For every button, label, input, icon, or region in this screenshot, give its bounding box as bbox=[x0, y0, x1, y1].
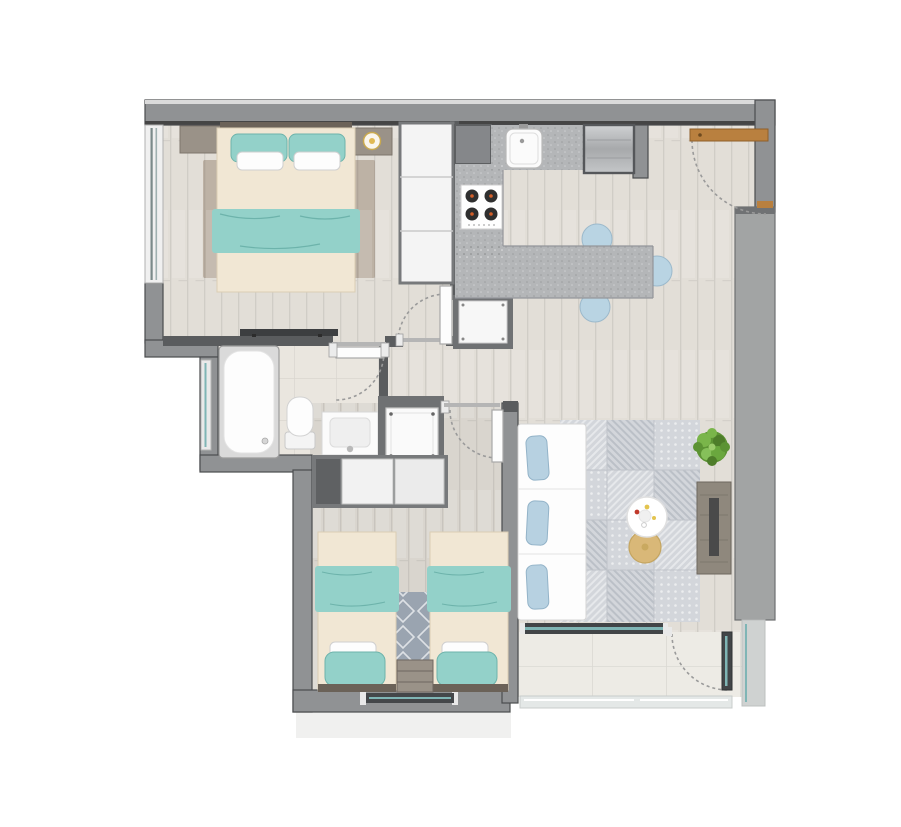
screw-dot bbox=[462, 304, 465, 307]
bedroom1-bottom-wall bbox=[163, 336, 333, 346]
right-wall-upper bbox=[755, 100, 775, 212]
door-frame-post bbox=[666, 627, 672, 636]
burner-center bbox=[489, 194, 493, 198]
closet-panel bbox=[342, 459, 393, 504]
screw-dot bbox=[502, 338, 505, 341]
glass-railing-bottom bbox=[520, 696, 732, 708]
entry-divider-wall bbox=[633, 125, 648, 178]
screw-dot bbox=[502, 304, 505, 307]
plant-center bbox=[709, 444, 716, 451]
table-lamp-bulb bbox=[369, 138, 375, 144]
entry-door-strike-sill bbox=[757, 201, 773, 208]
railing-glass-line bbox=[640, 699, 728, 701]
plant-leaf bbox=[707, 456, 717, 466]
table-decor-red bbox=[635, 510, 640, 515]
table-decor-yellow bbox=[652, 516, 656, 520]
screw-dot bbox=[462, 338, 465, 341]
sofa bbox=[518, 424, 586, 620]
burner-center bbox=[489, 212, 493, 216]
console-foot bbox=[318, 334, 322, 337]
right-wall-lower bbox=[735, 207, 775, 620]
plant-leaf bbox=[720, 442, 730, 452]
screw-dot bbox=[431, 412, 435, 416]
sink-drain bbox=[520, 139, 524, 143]
bed-headboard bbox=[318, 684, 396, 692]
rug-patch bbox=[607, 570, 654, 622]
bedroom1-door-leaf bbox=[440, 286, 452, 344]
teal-pillow bbox=[325, 652, 385, 686]
door-frame-post bbox=[381, 343, 389, 357]
bathtub-drain bbox=[262, 438, 268, 444]
rug-patch bbox=[654, 570, 700, 622]
closet-panel bbox=[395, 459, 444, 504]
vanity-faucet bbox=[347, 446, 353, 452]
cooktop bbox=[461, 185, 502, 229]
window-glazing bbox=[369, 697, 451, 699]
white-pillow-right bbox=[294, 152, 340, 170]
floor-plan-stage bbox=[0, 0, 901, 827]
bedroom2-nightstand bbox=[397, 660, 433, 692]
refrigerator bbox=[584, 125, 634, 173]
coffee-table-plate bbox=[639, 510, 651, 522]
sofa-pillow bbox=[525, 435, 549, 480]
pantry-door bbox=[459, 301, 507, 343]
wardrobe bbox=[400, 123, 453, 283]
sofa-pillow bbox=[526, 501, 549, 546]
table-decor-white bbox=[642, 523, 647, 528]
plant-leaf bbox=[707, 428, 717, 438]
window-glazing bbox=[151, 128, 153, 280]
rug-patch bbox=[654, 420, 700, 470]
door-frame-post bbox=[329, 343, 337, 357]
bedroom2-door-pier bbox=[503, 401, 518, 412]
floor-plan bbox=[0, 0, 901, 827]
teal-pillow bbox=[437, 652, 497, 686]
ottoman-tuft bbox=[642, 544, 649, 551]
closet-niche bbox=[316, 459, 340, 504]
exterior-apron bbox=[296, 712, 511, 738]
screw-dot bbox=[389, 412, 393, 416]
pantry-cabinet bbox=[453, 295, 513, 349]
bathtub bbox=[224, 351, 274, 453]
door-handle bbox=[698, 133, 702, 137]
sliding-window-glass bbox=[524, 627, 664, 630]
single-bed-left bbox=[315, 532, 399, 692]
door-threshold bbox=[332, 342, 386, 346]
bed-headboard bbox=[430, 684, 508, 692]
duct-shaft bbox=[455, 125, 491, 164]
plant-leaf bbox=[693, 442, 703, 452]
window-post bbox=[360, 692, 366, 705]
white-pillow-left bbox=[237, 152, 283, 170]
counter-speckle bbox=[455, 246, 653, 298]
bedroom2-door-leaf bbox=[492, 410, 503, 462]
bathroom-door-leaf bbox=[336, 347, 384, 358]
top-wall-highlight bbox=[145, 100, 775, 104]
vanity-basin bbox=[330, 418, 370, 447]
burner-center bbox=[470, 212, 474, 216]
room-living bbox=[518, 420, 731, 622]
cooktop-panel bbox=[461, 185, 502, 229]
door-threshold bbox=[396, 338, 446, 342]
bedroom2-left-wall bbox=[293, 470, 312, 712]
double-bed-blanket bbox=[212, 209, 360, 253]
railing-glass-line bbox=[524, 699, 634, 701]
door-frame-post bbox=[396, 334, 403, 346]
single-bed-right bbox=[427, 532, 511, 692]
washing-machine bbox=[386, 408, 438, 462]
railing-glass-line bbox=[745, 624, 747, 702]
burner-center bbox=[470, 194, 474, 198]
balcony-door-glass bbox=[725, 636, 728, 686]
window-glazing bbox=[156, 128, 158, 280]
toilet-bowl bbox=[287, 397, 313, 436]
tv-console-slot bbox=[709, 498, 719, 556]
console-foot bbox=[252, 334, 256, 337]
door-threshold bbox=[444, 403, 500, 407]
table-decor-yellow bbox=[645, 505, 650, 510]
tv-console bbox=[697, 482, 731, 574]
left-wall-lower bbox=[145, 283, 163, 343]
bedroom1-window bbox=[145, 125, 163, 283]
sliding-window-cap bbox=[520, 623, 525, 634]
sofa-pillow bbox=[526, 564, 549, 609]
window-glazing bbox=[205, 363, 207, 447]
rug-patch bbox=[607, 420, 654, 470]
